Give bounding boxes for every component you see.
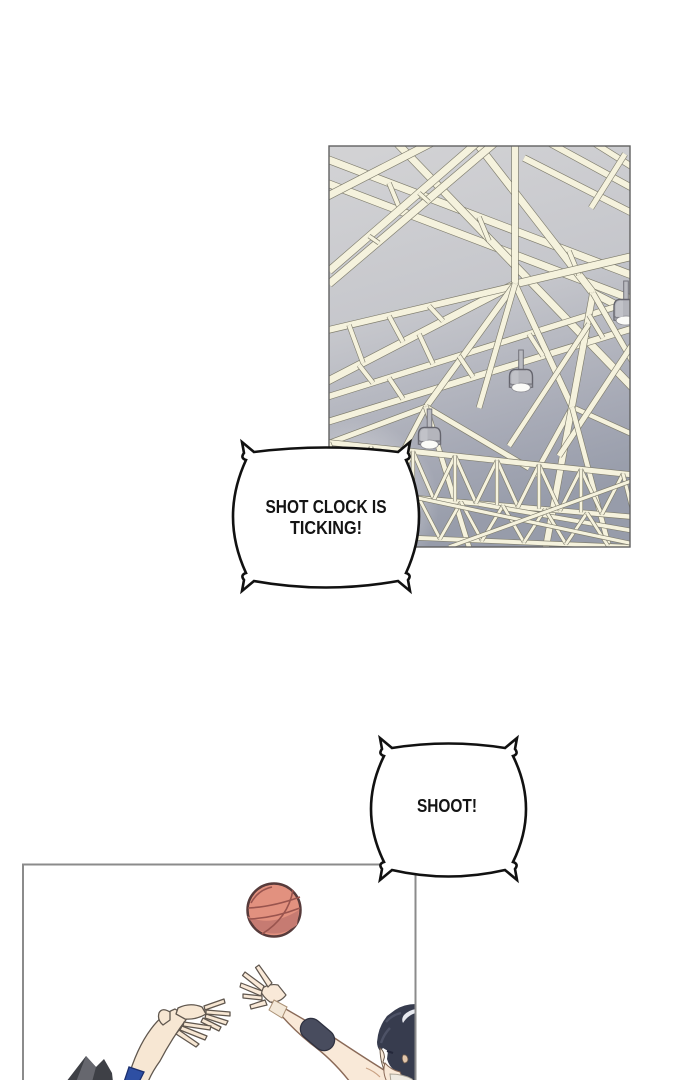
svg-text:SHOT CLOCK IS: SHOT CLOCK IS [266, 496, 387, 517]
svg-text:SHOOT!: SHOOT! [417, 795, 477, 816]
svg-text:TICKING!: TICKING! [290, 517, 362, 538]
